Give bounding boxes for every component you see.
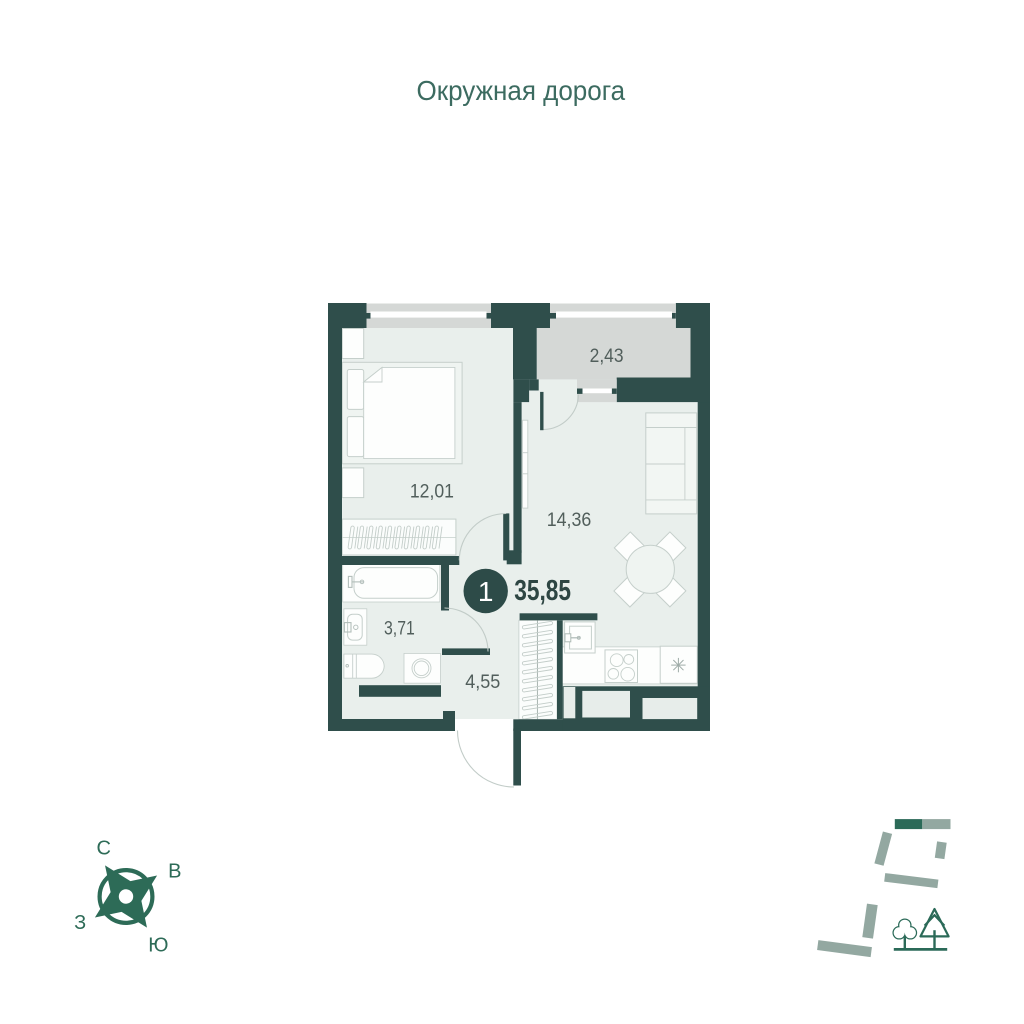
- svg-text:35,85: 35,85: [514, 573, 571, 606]
- svg-text:З: З: [74, 912, 86, 934]
- svg-text:3,71: 3,71: [384, 617, 415, 639]
- svg-text:В: В: [168, 861, 181, 883]
- svg-text:2,43: 2,43: [590, 344, 624, 366]
- svg-text:1: 1: [478, 576, 494, 607]
- svg-text:4,55: 4,55: [465, 670, 500, 692]
- svg-text:С: С: [96, 837, 110, 859]
- svg-text:Ю: Ю: [148, 934, 168, 956]
- svg-text:14,36: 14,36: [547, 508, 592, 530]
- svg-text:12,01: 12,01: [410, 480, 454, 502]
- svg-text:Окружная дорога: Окружная дорога: [416, 75, 626, 106]
